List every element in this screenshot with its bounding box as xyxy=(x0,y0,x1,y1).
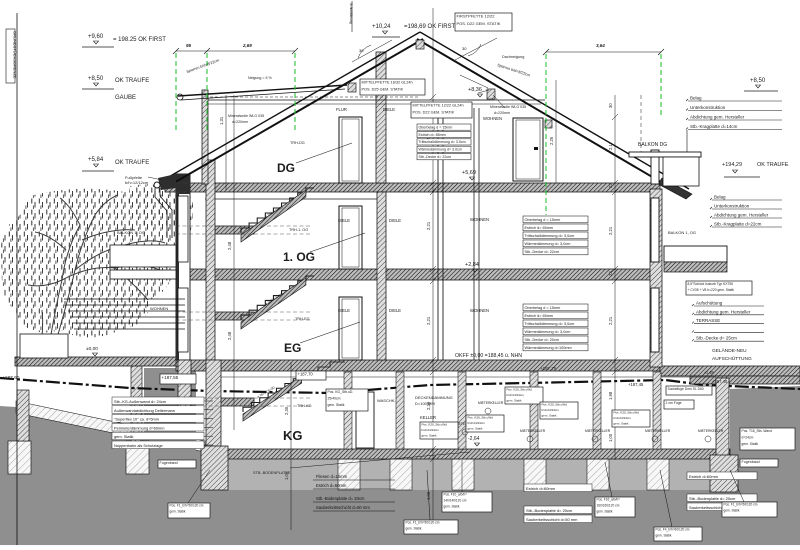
svg-text:+5,84: +5,84 xyxy=(88,157,104,163)
svg-text:Estrich d=60mm: Estrich d=60mm xyxy=(526,486,556,491)
svg-text:Abdichtung gem. Hersteller: Abdichtung gem. Hersteller xyxy=(714,213,769,218)
svg-text:POS. D22 GEM. STATIK: POS. D22 GEM. STATIK xyxy=(457,21,501,26)
svg-text:Wärmedämmung d= 3,0cm: Wärmedämmung d= 3,0cm xyxy=(525,330,571,334)
svg-text:Sauberkeitsschicht d=50 mm: Sauberkeitsschicht d=50 mm xyxy=(526,517,578,522)
svg-text:Stb.-Decke d= 22cm: Stb.-Decke d= 22cm xyxy=(525,250,560,254)
svg-text:+187,60: +187,60 xyxy=(2,375,20,381)
svg-text:gem. Statik: gem. Statik xyxy=(507,398,523,402)
svg-text:+187,70: +187,70 xyxy=(298,372,314,377)
svg-text:gem. Statik: gem. Statik xyxy=(542,413,558,417)
svg-text:MIETERKELLER: MIETERKELLER xyxy=(645,429,671,433)
svg-text:1,31: 1,31 xyxy=(219,116,224,125)
svg-text:Stb.-Decke d= 20cm: Stb.-Decke d= 20cm xyxy=(525,338,560,342)
svg-text:OK TRAUFE: OK TRAUFE xyxy=(115,78,149,84)
svg-text:8,5°Schöck Isokorb Typ KXT50: 8,5°Schöck Isokorb Typ KXT50 xyxy=(688,282,734,286)
svg-text:Belag: Belag xyxy=(690,96,702,101)
svg-text:25/40cm: 25/40cm xyxy=(328,397,341,401)
svg-text:2,69: 2,69 xyxy=(242,43,252,48)
svg-text:WOHNEN: WOHNEN xyxy=(483,116,502,121)
svg-text:+10,24: +10,24 xyxy=(372,24,391,30)
svg-text:FIRSTPFETTE 12/22: FIRSTPFETTE 12/22 xyxy=(457,14,496,19)
svg-text:Wärmedämmung d= 3.0cm: Wärmedämmung d= 3.0cm xyxy=(419,148,462,152)
svg-text:b/d=24/24cm: b/d=24/24cm xyxy=(422,428,440,432)
svg-text:+187,40: +187,40 xyxy=(712,379,728,384)
svg-text:d=220mm: d=220mm xyxy=(232,120,248,124)
svg-text:+8,36: +8,36 xyxy=(468,87,482,93)
svg-text:2,21: 2,21 xyxy=(608,226,613,235)
svg-text:gem. Statik: gem. Statik xyxy=(114,434,134,439)
svg-text:Stb.-Decke d= 25cm: Stb.-Decke d= 25cm xyxy=(696,336,737,341)
svg-text:STB.-BODENPLATTE: STB.-BODENPLATTE xyxy=(253,471,291,475)
svg-text:Stb.-Bodenplatte d= 20cm: Stb.-Bodenplatte d= 20cm xyxy=(316,496,365,501)
svg-text:TRH-KG: TRH-KG xyxy=(297,404,312,408)
svg-text:+187,75: +187,75 xyxy=(540,366,557,371)
svg-text:MITTELPFETTE 16/32 GL24h: MITTELPFETTE 16/32 GL24h xyxy=(362,80,413,84)
svg-text:gem. Statik: gem. Statik xyxy=(468,426,484,430)
svg-text:Pos. F1_b/h=50/120 cm: Pos. F1_b/h=50/120 cm xyxy=(170,504,204,508)
svg-text:Oberbelag d = 15mm: Oberbelag d = 15mm xyxy=(525,218,561,222)
svg-text:Neigung = 5 %: Neigung = 5 % xyxy=(248,76,272,80)
svg-text:gem. Statik: gem. Statik xyxy=(444,505,460,509)
svg-text:1,00: 1,00 xyxy=(608,433,613,442)
svg-text:AUFSCHÜTTUNG: AUFSCHÜTTUNG xyxy=(712,355,752,362)
svg-text:22: 22 xyxy=(608,183,613,188)
svg-text:TRH-EG: TRH-EG xyxy=(295,317,310,321)
svg-text:Unterkonstruktion: Unterkonstruktion xyxy=(690,105,726,110)
svg-text:gem. Statik: gem. Statik xyxy=(656,534,672,538)
svg-text:Sockelfuge Dorn SL D60: Sockelfuge Dorn SL D60 xyxy=(668,387,704,391)
svg-text:Pos. K20_Stb.uWd: Pos. K20_Stb.uWd xyxy=(468,416,494,420)
svg-text:BALKON 1, OG: BALKON 1, OG xyxy=(117,230,145,235)
svg-text:gem. Statik: gem. Statik xyxy=(328,403,345,407)
svg-text:gem. Statik: gem. Statik xyxy=(170,510,186,514)
svg-text:30: 30 xyxy=(359,48,364,53)
svg-text:BALKON DG: BALKON DG xyxy=(638,142,667,148)
svg-text:2,21: 2,21 xyxy=(426,316,431,325)
svg-text:gem. Statik: gem. Statik xyxy=(597,510,613,514)
svg-text:FLUR: FLUR xyxy=(336,107,347,112)
svg-text:2,26: 2,26 xyxy=(549,136,554,145)
svg-text:Mineralwolle WLG 035: Mineralwolle WLG 035 xyxy=(228,114,264,118)
svg-text:b/h=12/12cm: b/h=12/12cm xyxy=(125,180,149,185)
svg-text:DG: DG xyxy=(277,161,295,175)
svg-text:22: 22 xyxy=(608,271,613,276)
svg-text:GAUBE: GAUBE xyxy=(115,95,136,101)
svg-text:Pos. F4_b/h=60/120 cm: Pos. F4_b/h=60/120 cm xyxy=(656,528,690,532)
svg-text:Abdichtung gem. Hersteller: Abdichtung gem. Hersteller xyxy=(696,309,751,314)
svg-text:Außenwandabdichtung Deitermann: Außenwandabdichtung Deitermann xyxy=(114,408,175,413)
svg-text:Sauberkeitsschicht d=50 mm: Sauberkeitsschicht d=50 mm xyxy=(316,505,370,510)
svg-text:Estrich d= 65mm: Estrich d= 65mm xyxy=(525,314,554,318)
svg-text:gem. Statik: gem. Statik xyxy=(422,433,438,437)
svg-text:WASCHK.: WASCHK. xyxy=(377,398,396,403)
svg-text:gem. Statik: gem. Statik xyxy=(742,442,759,446)
svg-text:Pos. T16_Stb.-Wand: Pos. T16_Stb.-Wand xyxy=(742,429,773,433)
svg-text:2 cm Fuge: 2 cm Fuge xyxy=(666,401,682,405)
svg-text:WOHNEN: WOHNEN xyxy=(470,217,489,222)
svg-text:+ CV35 + V8 h=220 gem. Statik: + CV35 + V8 h=220 gem. Statik xyxy=(688,288,735,292)
svg-text:Perimeterdämmung d=60mm: Perimeterdämmung d=60mm xyxy=(114,425,165,430)
svg-text:140/140/120 cm: 140/140/120 cm xyxy=(444,499,467,503)
svg-text:d=220mm: d=220mm xyxy=(494,111,510,115)
svg-text:Oberbelag d = 15mm: Oberbelag d = 15mm xyxy=(525,306,561,310)
svg-text:POS. D22 GEM. STATIK: POS. D22 GEM. STATIK xyxy=(413,110,455,114)
svg-text:Unterkonstruktion: Unterkonstruktion xyxy=(714,204,750,209)
svg-text:Mineralwolle WLG 035: Mineralwolle WLG 035 xyxy=(490,105,526,109)
svg-text:Dachneigung: Dachneigung xyxy=(502,55,524,59)
svg-text:1,98: 1,98 xyxy=(608,391,613,400)
svg-text:DECKENDÄMMUNG: DECKENDÄMMUNG xyxy=(415,395,453,400)
svg-text:EG: EG xyxy=(284,341,301,355)
svg-text:+187,55: +187,55 xyxy=(162,375,179,380)
svg-text:Pos. K20_Stb.uWd: Pos. K20_Stb.uWd xyxy=(507,388,533,392)
svg-text:95: 95 xyxy=(186,43,192,48)
svg-text:gem. Statik: gem. Statik xyxy=(724,509,740,513)
svg-text:+194,29: +194,29 xyxy=(722,162,742,168)
svg-text:Trittschalldämmung d= 3.0cm: Trittschalldämmung d= 3.0cm xyxy=(419,140,466,144)
svg-text:Stb.-Kragplatte d=14cm: Stb.-Kragplatte d=14cm xyxy=(690,124,738,129)
svg-text:Pos. KG_Stb.uD.: Pos. KG_Stb.uD. xyxy=(328,390,354,394)
svg-text:MITTELPFETTE 12/22 GL24h: MITTELPFETTE 12/22 GL24h xyxy=(413,103,464,107)
svg-text:Oberbelag d = 15mm: Oberbelag d = 15mm xyxy=(419,125,453,129)
svg-text:"Superflex 10" ca. d=5mm: "Superflex 10" ca. d=5mm xyxy=(114,417,159,422)
svg-text:WOHNEN: WOHNEN xyxy=(150,306,168,311)
svg-text:b/d=24/24cm: b/d=24/24cm xyxy=(468,421,486,425)
svg-text:+2,84: +2,84 xyxy=(465,262,479,268)
svg-text:2,21: 2,21 xyxy=(608,316,613,325)
svg-text:Stb.-KG-Außenwand d= 24cm: Stb.-KG-Außenwand d= 24cm xyxy=(114,399,166,404)
svg-text:TERRASSE: TERRASSE xyxy=(696,318,720,323)
svg-text:KG: KG xyxy=(283,428,303,443)
svg-text:Trittschalldämmung d= 3,0cm: Trittschalldämmung d= 3,0cm xyxy=(525,322,575,326)
svg-text:±0,00: ±0,00 xyxy=(86,346,98,352)
svg-text:MIETERKELLER: MIETERKELLER xyxy=(698,429,724,433)
svg-text:+8,50: +8,50 xyxy=(750,78,766,84)
svg-text:GELÄNDE-NEU: GELÄNDE-NEU xyxy=(712,347,747,354)
svg-text:Pos. F10_a/b/h=: Pos. F10_a/b/h= xyxy=(444,493,468,497)
svg-text:WOHNEN: WOHNEN xyxy=(470,308,489,313)
svg-text:Wärmedämmung d= 3,0cm: Wärmedämmung d= 3,0cm xyxy=(525,242,571,246)
svg-text:POS. D25 GEM. STATIK: POS. D25 GEM. STATIK xyxy=(362,87,404,91)
svg-text:TRH-DG: TRH-DG xyxy=(290,141,305,145)
svg-text:Fugenband: Fugenband xyxy=(160,461,178,465)
svg-text:OK TRAUFE: OK TRAUFE xyxy=(115,160,149,166)
svg-text:b/d=24/24cm: b/d=24/24cm xyxy=(507,393,525,397)
svg-text:MIETERKELLER: MIETERKELLER xyxy=(520,429,546,433)
svg-text:-2,64: -2,64 xyxy=(468,436,480,442)
svg-text:MIETERKELLER: MIETERKELLER xyxy=(585,429,611,433)
svg-text:b/d=24/24cm: b/d=24/24cm xyxy=(542,408,560,412)
svg-text:Estrich d= 85mm: Estrich d= 85mm xyxy=(419,133,446,137)
svg-text:+8,50: +8,50 xyxy=(88,76,104,82)
svg-text:Estrich d=60mm: Estrich d=60mm xyxy=(689,474,719,479)
svg-text:D=100 MM: D=100 MM xyxy=(415,401,435,406)
svg-text:b/d=24/24cm: b/d=24/24cm xyxy=(614,416,632,420)
svg-text:d=24cm: d=24cm xyxy=(742,435,754,439)
svg-text:MIETERKELLER: MIETERKELLER xyxy=(478,401,504,405)
svg-text:2,30: 2,30 xyxy=(284,406,289,415)
svg-text:Estrich d=60mm: Estrich d=60mm xyxy=(316,483,347,488)
svg-text:160/160/120 cm: 160/160/120 cm xyxy=(597,504,620,508)
svg-text:DIELE: DIELE xyxy=(338,308,350,313)
svg-text:Stb.-Decke d= 22cm: Stb.-Decke d= 22cm xyxy=(419,155,452,159)
svg-text:Pos. F16_a/b/h=: Pos. F16_a/b/h= xyxy=(597,498,621,502)
svg-text:Stb.-Bodenplatte d= 20cm: Stb.-Bodenplatte d= 20cm xyxy=(689,496,736,501)
svg-text:Pos. K20_Stb.uWd: Pos. K20_Stb.uWd xyxy=(542,403,568,407)
svg-text:2,21: 2,21 xyxy=(426,221,431,230)
svg-text:30: 30 xyxy=(608,103,613,108)
svg-text:DIELE: DIELE xyxy=(389,308,401,313)
svg-text:Pos. K20_Stb.uWd: Pos. K20_Stb.uWd xyxy=(422,423,448,427)
svg-text:BALKON 1, OG: BALKON 1, OG xyxy=(668,230,696,235)
svg-text:= 198.25 OK FIRST: = 198.25 OK FIRST xyxy=(113,37,166,43)
svg-text:Trittschalldämmung d= 3,0cm: Trittschalldämmung d= 3,0cm xyxy=(525,234,575,238)
svg-text:Fliesen d=15mm: Fliesen d=15mm xyxy=(316,474,348,479)
svg-text:DIELE: DIELE xyxy=(389,218,401,223)
svg-text:gem. Statik: gem. Statik xyxy=(406,527,422,531)
svg-text:Aufschüttung: Aufschüttung xyxy=(696,301,723,306)
svg-text:GRUNDSTÜCKSGRENZE: GRUNDSTÜCKSGRENZE xyxy=(13,31,18,79)
svg-text:OK TRAUFE: OK TRAUFE xyxy=(757,162,789,168)
svg-text:+9,60: +9,60 xyxy=(88,34,104,40)
svg-text:Stb.-Bodenplatte d= 20cm: Stb.-Bodenplatte d= 20cm xyxy=(526,508,573,513)
svg-text:2,17: 2,17 xyxy=(608,141,613,150)
svg-text:Pos. F1_b/h=50/120 cm: Pos. F1_b/h=50/120 cm xyxy=(724,503,758,507)
svg-text:+187,45: +187,45 xyxy=(628,382,644,387)
svg-text:Pos. F1_b/h=50/120 cm: Pos. F1_b/h=50/120 cm xyxy=(406,521,440,525)
svg-text:DIELE: DIELE xyxy=(383,107,395,112)
svg-text:DIELE: DIELE xyxy=(338,218,350,223)
svg-text:Abdichtung gem. Hersteller: Abdichtung gem. Hersteller xyxy=(690,115,745,120)
svg-text:2,48: 2,48 xyxy=(227,331,232,340)
svg-text:Noppenbahn als Schutzlage: Noppenbahn als Schutzlage xyxy=(114,443,163,448)
svg-text:Estrich d= 65mm: Estrich d= 65mm xyxy=(525,226,554,230)
svg-text:Belag: Belag xyxy=(714,195,726,200)
svg-text:30: 30 xyxy=(462,46,467,51)
svg-text:Stb.-Kragplatte d=22cm: Stb.-Kragplatte d=22cm xyxy=(714,222,762,227)
svg-text:3,64: 3,64 xyxy=(596,43,605,48)
svg-text:=198,69 OK FIRST: =198,69 OK FIRST xyxy=(404,24,456,30)
svg-text:-0,49: -0,49 xyxy=(704,370,714,375)
svg-text:KELLER: KELLER xyxy=(420,415,436,420)
svg-text:2,48: 2,48 xyxy=(227,241,232,250)
svg-text:+5,69: +5,69 xyxy=(462,170,476,176)
svg-text:TRH-1. OG: TRH-1. OG xyxy=(289,228,308,232)
svg-text:OKFF ±0,00 =188,45 ü. NHN: OKFF ±0,00 =188,45 ü. NHN xyxy=(455,353,522,359)
svg-text:gem. Statik: gem. Statik xyxy=(614,421,630,425)
svg-text:Pos. K20_Stb.uWd: Pos. K20_Stb.uWd xyxy=(614,411,640,415)
svg-text:Fugenband: Fugenband xyxy=(742,460,760,464)
svg-text:Schnittführung: Schnittführung xyxy=(349,3,353,24)
svg-text:Wärmedämmung d=100mm: Wärmedämmung d=100mm xyxy=(525,346,572,350)
